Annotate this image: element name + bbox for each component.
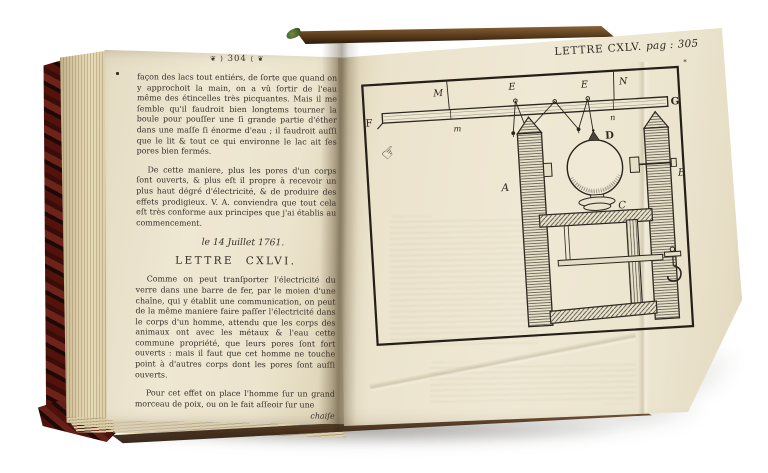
page-number-305: 305	[677, 37, 698, 50]
iron-bar	[377, 97, 669, 129]
glass-globe	[565, 127, 624, 199]
post-left	[516, 116, 553, 326]
fleuron-left-icon: ❦ )	[210, 55, 224, 63]
pag-label: pag :	[646, 39, 674, 53]
fold-crease	[638, 62, 650, 414]
left-page-text-block: ❦ ) 304 ( ❦ façon des lacs tout entiérs,…	[135, 53, 338, 421]
letter-heading: LETTRE CXLVI.	[136, 255, 336, 268]
printer-mark: *	[683, 58, 687, 66]
label-m: m	[453, 124, 462, 133]
label-B: B	[677, 167, 686, 178]
paragraph: De cette maniere, plus les pores d'un co…	[136, 165, 336, 230]
bearing-left	[543, 163, 552, 177]
photo-backdrop: ❦ ) 304 ( ❦ façon des lacs tout entiérs,…	[0, 0, 768, 473]
silk-cord-left	[447, 82, 450, 110]
label-n: n	[610, 113, 616, 122]
gutter-shadow	[318, 42, 360, 432]
show-through-text	[390, 216, 538, 348]
plate-page: LETTRE CXLV. pag : 305 *	[338, 20, 754, 432]
paragraph: façon des lacs tout entiérs, de ſorte qu…	[137, 72, 338, 158]
fold-crease-diagonal	[370, 332, 637, 392]
sliding-board	[626, 219, 642, 303]
bookmark-sprig	[285, 27, 302, 40]
paragraph: Comme on peut tranſporter l'électricité …	[135, 275, 336, 382]
screw-nut	[671, 158, 676, 166]
label-N: N	[618, 76, 629, 88]
thin-rod-a	[564, 226, 566, 260]
label-D: D	[605, 130, 615, 142]
figure-frame	[362, 67, 693, 345]
page-number-304: 304	[228, 54, 247, 64]
plate-content: LETTRE CXLV. pag : 305 *	[352, 27, 718, 387]
cushion	[579, 196, 617, 221]
axle	[558, 254, 663, 266]
chain	[510, 95, 592, 138]
crank-handle	[664, 246, 682, 281]
thin-rod-b	[568, 226, 570, 260]
label-E-left: E	[507, 82, 516, 93]
upper-beam	[539, 209, 652, 228]
label-A: A	[500, 182, 510, 195]
pointing-hand-icon: ☞	[377, 140, 402, 165]
left-page: ❦ ) 304 ( ❦ façon des lacs tout entiérs,…	[102, 46, 344, 428]
catchword: chaiſe	[135, 411, 335, 421]
hanging-string	[588, 100, 593, 132]
show-through-text	[430, 362, 636, 404]
running-head-recto: LETTRE CXLV. pag : 305	[528, 37, 698, 59]
label-F: F	[365, 118, 373, 129]
label-C: C	[618, 200, 627, 211]
running-head-verso: ❦ ) 304 ( ❦	[137, 53, 337, 64]
bearing-right	[630, 157, 640, 173]
fleuron-right-icon: ( ❦	[251, 55, 265, 63]
lower-crossbar	[550, 301, 657, 323]
plate-title: LETTRE CXLV.	[554, 41, 642, 58]
post-right	[643, 111, 679, 319]
date-line: le 14 Juillet 1761.	[150, 237, 336, 249]
plate-figure: ☞	[360, 64, 697, 351]
paragraph: Pour cet effet on place l'homme ſur un g…	[135, 389, 335, 412]
label-M: M	[432, 88, 444, 100]
silk-cord-right	[612, 72, 615, 100]
screw	[639, 162, 672, 164]
label-E-right: E	[580, 79, 589, 90]
ink-spot	[116, 72, 119, 75]
label-G: G	[670, 96, 679, 107]
